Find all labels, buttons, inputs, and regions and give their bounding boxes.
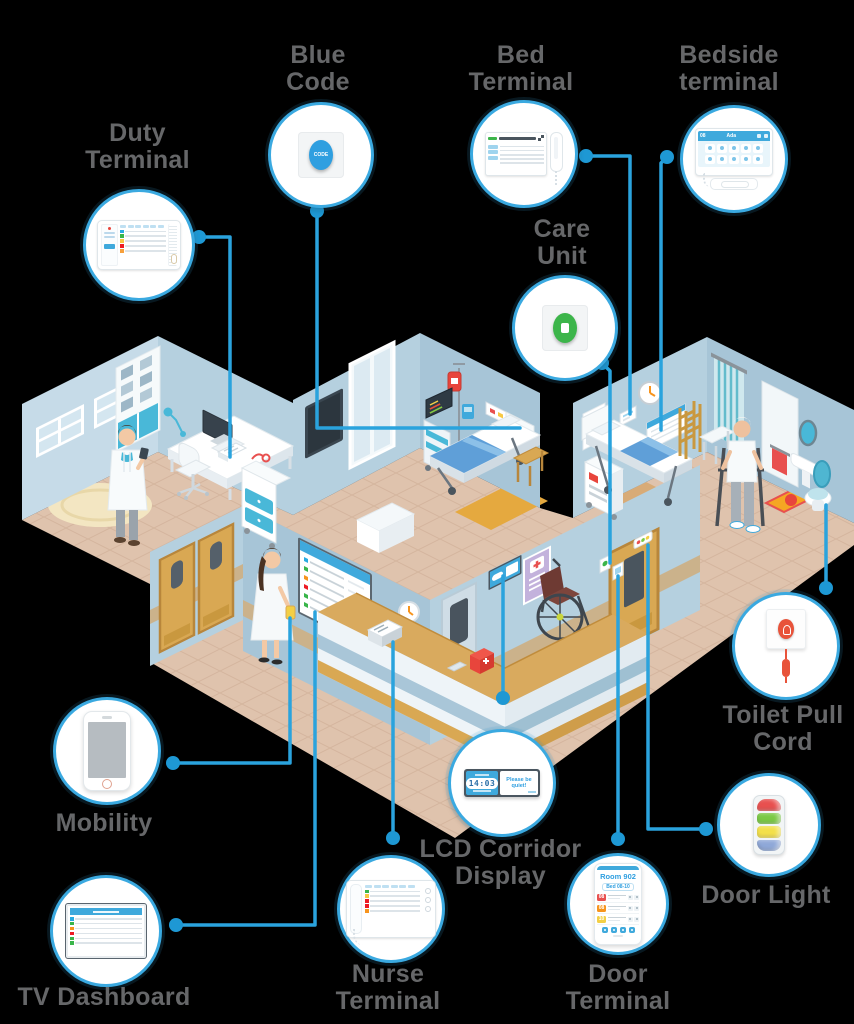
label-bed-terminal: Bed Terminal bbox=[451, 42, 591, 96]
bedside-time: 08 bbox=[700, 133, 706, 139]
call-row: 08 bbox=[597, 903, 639, 914]
label-nurse-terminal: Nurse Terminal bbox=[318, 961, 458, 1015]
bed-terminal-mock bbox=[485, 132, 563, 176]
handset-cradle-icon bbox=[710, 178, 758, 190]
door-terminal-bed: Bed 08-10 bbox=[602, 883, 634, 891]
lcd-display-mock: 14:03 Please be quiet! bbox=[464, 769, 540, 797]
care-unit-button bbox=[553, 313, 577, 343]
bedside-patient-name: Ada bbox=[709, 133, 754, 139]
call-row: 08 bbox=[597, 892, 639, 903]
label-care-unit: Care Unit bbox=[517, 216, 607, 270]
door-light-mock bbox=[753, 795, 785, 855]
callout-bedside-terminal: 08 Ada bbox=[680, 105, 788, 213]
lcd-time: 14:03 bbox=[466, 778, 499, 789]
label-blue-code: Blue Code bbox=[268, 42, 368, 96]
lcd-message: Please be quiet! bbox=[500, 777, 538, 789]
door-terminal-mock: Room 902 Bed 08-10 08 08 10 bbox=[594, 863, 642, 945]
duty-screen-rows bbox=[120, 230, 166, 253]
handset-icon bbox=[350, 884, 362, 934]
callout-lcd-display: 14:03 Please be quiet! bbox=[448, 729, 556, 837]
callout-door-terminal: Room 902 Bed 08-10 08 08 10 bbox=[567, 853, 669, 955]
callout-toilet-pull-cord bbox=[732, 592, 840, 700]
tv-dashboard-mock bbox=[66, 904, 146, 958]
label-tv-dashboard: TV Dashboard bbox=[0, 984, 208, 1011]
callout-door-light bbox=[717, 773, 821, 877]
callout-tv-dashboard bbox=[50, 875, 162, 987]
blue-code-button: CODE bbox=[309, 140, 333, 170]
nurse-screen-rows bbox=[365, 890, 420, 913]
bedside-terminal-mock: 08 Ada bbox=[695, 128, 773, 190]
call-row: 10 bbox=[597, 914, 639, 925]
care-unit-panel bbox=[542, 305, 588, 351]
toilet-pull-cord-mock bbox=[766, 609, 806, 683]
room-window bbox=[350, 342, 394, 468]
callout-bed-terminal bbox=[470, 100, 578, 208]
label-toilet-pull-cord: Toilet Pull Cord bbox=[708, 702, 854, 756]
tv-dashboard-rows bbox=[70, 917, 142, 945]
callout-blue-code: CODE bbox=[268, 102, 374, 208]
callout-care-unit bbox=[512, 275, 618, 381]
door-terminal-room: Room 902 bbox=[600, 872, 636, 881]
ward-door bbox=[160, 543, 194, 652]
blue-code-panel: CODE bbox=[298, 132, 344, 178]
label-bedside-terminal: Bedside terminal bbox=[654, 42, 804, 96]
callout-duty-terminal bbox=[83, 189, 195, 301]
ward-door bbox=[199, 524, 233, 633]
label-duty-terminal: Duty Terminal bbox=[55, 120, 220, 174]
label-mobility: Mobility bbox=[24, 810, 184, 837]
infographic-canvas: Duty Terminal CODE Blue Code Bed Termina… bbox=[0, 0, 854, 1024]
label-door-terminal: Door Terminal bbox=[548, 961, 688, 1015]
duty-terminal-mock bbox=[97, 220, 181, 270]
mirror bbox=[800, 421, 816, 445]
smartphone-icon bbox=[83, 711, 131, 791]
handset-icon bbox=[550, 132, 563, 172]
callout-mobility bbox=[53, 697, 161, 805]
label-door-light: Door Light bbox=[676, 882, 854, 909]
